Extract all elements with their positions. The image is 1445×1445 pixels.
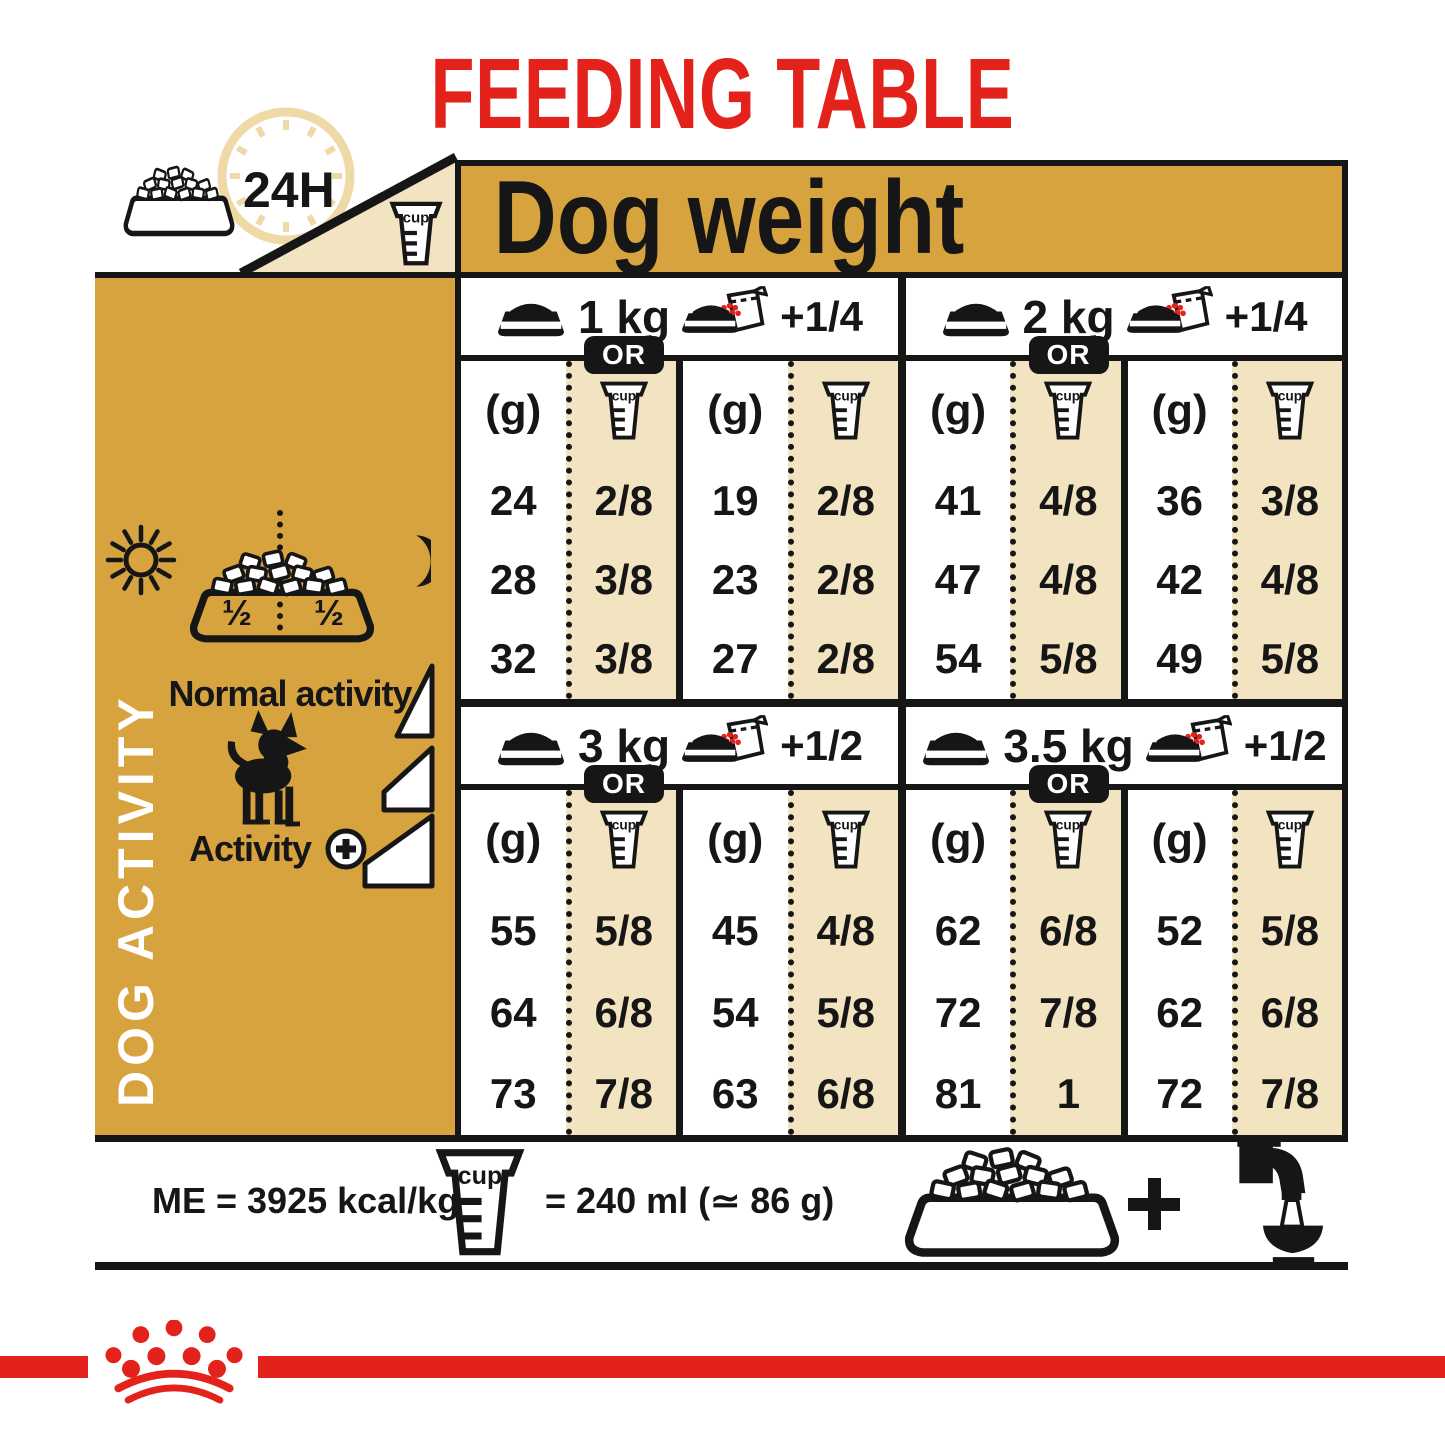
half-left-label: ½ xyxy=(207,592,267,634)
dog-activity-sidebar: ½ ½ DOG ACTIVITY Normal activity Activit… xyxy=(95,272,455,1142)
cup-icon xyxy=(1042,381,1094,441)
grams-header: (g) xyxy=(930,386,986,436)
table-value: 73 xyxy=(461,1053,566,1135)
table-value: 3/8 xyxy=(572,540,677,619)
dog-weight-header: Dog weight xyxy=(455,160,1342,278)
corner-24h-cup: 24H xyxy=(95,89,461,278)
table-value: 7/8 xyxy=(1238,1053,1342,1135)
data-cell-1kg: (g) 24 28 32 2/8 3/8 3/8 (g) 19 23 27 2/… xyxy=(461,361,898,699)
table-value: 62 xyxy=(906,890,1010,972)
data-cell-3kg: (g) 55 64 73 5/8 6/8 7/8 (g) 45 54 63 4/… xyxy=(461,790,898,1135)
data-cell-2kg: (g) 41 47 54 4/8 4/8 5/8 (g) 36 42 49 3/… xyxy=(906,361,1342,699)
table-value: 2/8 xyxy=(794,540,899,619)
cup-column-wet: 2/8 2/8 2/8 xyxy=(788,361,899,699)
table-value: 63 xyxy=(683,1053,788,1135)
me-kcal-label: ME = 3925 kcal/kg xyxy=(152,1180,459,1222)
activity-level-triangles xyxy=(361,660,439,894)
cup-icon xyxy=(1042,810,1094,870)
table-value: 62 xyxy=(1128,972,1232,1054)
table-value: 54 xyxy=(906,620,1010,699)
table-value: 3/8 xyxy=(572,620,677,699)
table-value: 2/8 xyxy=(572,461,677,540)
table-value: 5/8 xyxy=(1016,620,1120,699)
grams-header: (g) xyxy=(485,386,541,436)
table-value: 72 xyxy=(906,972,1010,1054)
table-value: 6/8 xyxy=(572,972,677,1054)
table-value: 3/8 xyxy=(1238,461,1342,540)
section-header-3kg: 3 kg OR +1/2 xyxy=(461,707,898,784)
grams-header: (g) xyxy=(707,386,763,436)
wet-extra-label: +1/4 xyxy=(1225,293,1308,341)
grams-column-wet: (g) 36 42 49 xyxy=(1121,361,1232,699)
table-value: 55 xyxy=(461,890,566,972)
table-value: 49 xyxy=(1128,620,1232,699)
wet-pouch-bowl-icon xyxy=(682,715,768,777)
royal-canin-crown-logo xyxy=(100,1320,248,1404)
cup-icon xyxy=(1264,810,1316,870)
grams-column-wet: (g) 52 62 72 xyxy=(1121,790,1232,1135)
water-faucet-icon xyxy=(1188,1134,1336,1264)
table-value: 52 xyxy=(1128,890,1232,972)
half-right-label: ½ xyxy=(299,592,359,634)
section-header-3p5kg: 3.5 kg OR +1/2 xyxy=(906,707,1342,784)
cup-column: 4/8 4/8 5/8 xyxy=(1010,361,1120,699)
daily-24h-label: 24H xyxy=(243,162,335,218)
table-value: 2/8 xyxy=(794,461,899,540)
table-value: 32 xyxy=(461,620,566,699)
grams-header: (g) xyxy=(707,815,763,865)
dry-bowl-icon xyxy=(496,295,566,339)
cup-column: 6/8 7/8 1 xyxy=(1010,790,1120,1135)
table-value: 24 xyxy=(461,461,566,540)
sidebar-title: DOG ACTIVITY xyxy=(107,662,171,1138)
border-top xyxy=(455,160,1348,166)
table-value: 72 xyxy=(1128,1053,1232,1135)
table-value: 54 xyxy=(683,972,788,1054)
border-section-divider xyxy=(898,272,906,1142)
wet-pouch-bowl-icon xyxy=(682,286,768,348)
or-badge: OR xyxy=(1029,336,1109,374)
grams-column-wet: (g) 19 23 27 xyxy=(676,361,788,699)
cup-icon xyxy=(820,381,872,441)
dry-bowl-icon xyxy=(496,724,566,768)
or-badge: OR xyxy=(584,765,664,803)
table-value: 45 xyxy=(683,890,788,972)
section-header-2kg: 2 kg OR +1/4 xyxy=(906,278,1342,355)
table-value: 4/8 xyxy=(1238,540,1342,619)
feeding-table-page: cup xyxy=(0,0,1445,1445)
table-value: 28 xyxy=(461,540,566,619)
table-value: 81 xyxy=(906,1053,1010,1135)
border-right xyxy=(1342,160,1348,1142)
moon-icon xyxy=(389,534,431,588)
table-value: 5/8 xyxy=(794,972,899,1054)
dog-weight-label: Dog weight xyxy=(455,160,1200,276)
cup-icon xyxy=(598,381,650,441)
table-value: 36 xyxy=(1128,461,1232,540)
grams-header: (g) xyxy=(1152,386,1208,436)
border-above-footer xyxy=(95,1135,1348,1142)
section-header-1kg: 1 kg OR +1/4 xyxy=(461,278,898,355)
chihuahua-icon xyxy=(219,710,317,838)
table-value: 6/8 xyxy=(1016,890,1120,972)
cup-icon xyxy=(598,810,650,870)
cup-icon xyxy=(820,810,872,870)
cup-icon xyxy=(1264,381,1316,441)
table-value: 23 xyxy=(683,540,788,619)
wet-extra-label: +1/4 xyxy=(780,293,863,341)
kibble-bowl-icon xyxy=(898,1143,1126,1261)
grams-column: (g) 24 28 32 xyxy=(461,361,566,699)
data-cell-3p5kg: (g) 62 72 81 6/8 7/8 1 (g) 52 62 72 5/8 … xyxy=(906,790,1342,1135)
wet-extra-label: +1/2 xyxy=(1244,722,1327,770)
table-value: 6/8 xyxy=(794,1053,899,1135)
table-value: 5/8 xyxy=(1238,890,1342,972)
wet-pouch-bowl-icon xyxy=(1146,715,1232,777)
wet-pouch-bowl-icon xyxy=(1127,286,1213,348)
table-value: 41 xyxy=(906,461,1010,540)
cup-column-wet: 5/8 6/8 7/8 xyxy=(1232,790,1342,1135)
dry-bowl-icon xyxy=(941,295,1011,339)
grams-header: (g) xyxy=(930,815,986,865)
cup-icon xyxy=(432,1148,528,1258)
cup-column: 2/8 3/8 3/8 xyxy=(566,361,677,699)
table-value: 7/8 xyxy=(572,1053,677,1135)
sun-icon xyxy=(105,524,177,596)
table-value: 19 xyxy=(683,461,788,540)
table-value: 4/8 xyxy=(1016,540,1120,619)
grams-header: (g) xyxy=(1152,815,1208,865)
dry-bowl-icon xyxy=(921,724,991,768)
border-bottom xyxy=(95,1262,1348,1270)
table-value: 1 xyxy=(1016,1053,1120,1135)
table-value: 4/8 xyxy=(794,890,899,972)
grams-header: (g) xyxy=(485,815,541,865)
table-value: 6/8 xyxy=(1238,972,1342,1054)
table-value: 4/8 xyxy=(1016,461,1120,540)
grams-column: (g) 62 72 81 xyxy=(906,790,1010,1135)
table-value: 2/8 xyxy=(794,620,899,699)
grams-column: (g) 55 64 73 xyxy=(461,790,566,1135)
kibble-bowl-icon xyxy=(126,167,232,234)
activity-label: Activity xyxy=(175,828,325,870)
grams-column: (g) 41 47 54 xyxy=(906,361,1010,699)
or-badge: OR xyxy=(584,336,664,374)
brand-stripe-left xyxy=(0,1356,88,1378)
cup-column-wet: 4/8 5/8 6/8 xyxy=(788,790,899,1135)
plus-icon xyxy=(1128,1178,1180,1230)
cup-column: 5/8 6/8 7/8 xyxy=(566,790,677,1135)
cup-equivalence-label: = 240 ml (≃ 86 g) xyxy=(545,1180,834,1222)
table-value: 47 xyxy=(906,540,1010,619)
table-value: 5/8 xyxy=(572,890,677,972)
table-value: 5/8 xyxy=(1238,620,1342,699)
or-badge: OR xyxy=(1029,765,1109,803)
grams-column-wet: (g) 45 54 63 xyxy=(676,790,788,1135)
table-value: 64 xyxy=(461,972,566,1054)
wet-extra-label: +1/2 xyxy=(780,722,863,770)
table-value: 27 xyxy=(683,620,788,699)
table-value: 7/8 xyxy=(1016,972,1120,1054)
brand-stripe-right xyxy=(258,1356,1445,1378)
table-value: 42 xyxy=(1128,540,1232,619)
cup-column-wet: 3/8 4/8 5/8 xyxy=(1232,361,1342,699)
